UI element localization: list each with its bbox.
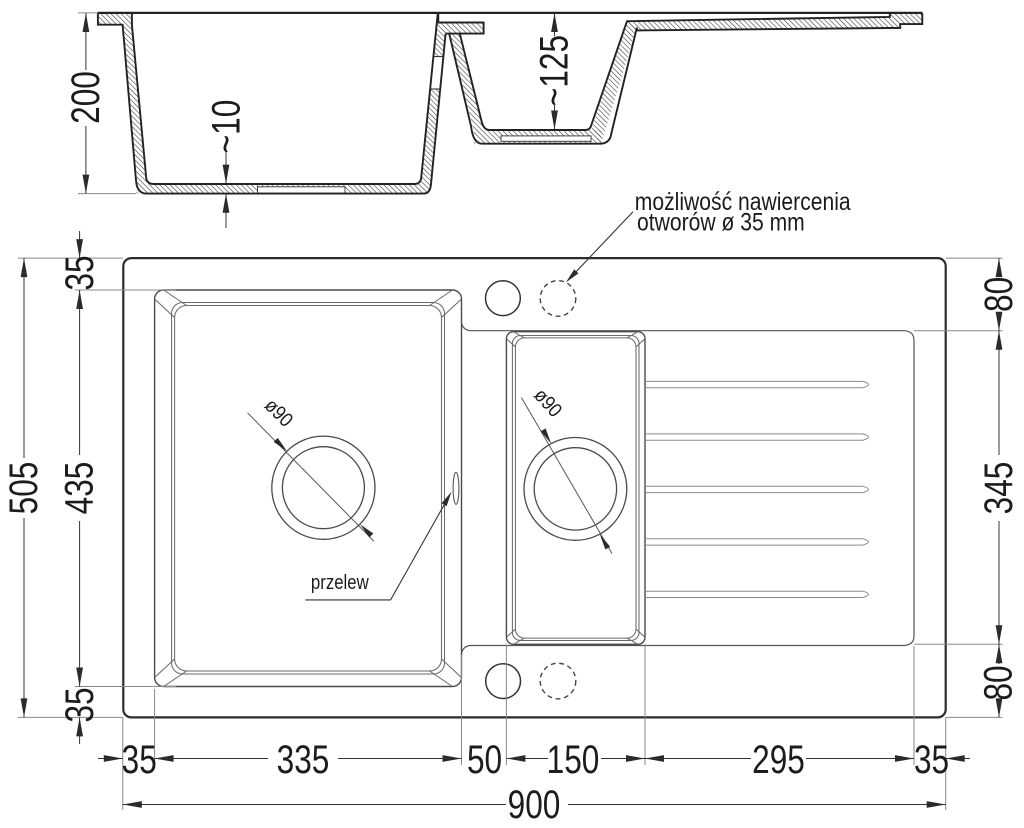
svg-text:900: 900: [508, 782, 561, 826]
svg-text:otworów ø 35 mm: otworów ø 35 mm: [637, 208, 805, 236]
svg-text:50: 50: [467, 737, 502, 781]
svg-text:35: 35: [58, 255, 102, 290]
svg-text:505: 505: [2, 462, 46, 515]
svg-text:150: 150: [547, 737, 600, 781]
svg-text:335: 335: [277, 737, 330, 781]
svg-text:80: 80: [976, 665, 1020, 700]
svg-text:35: 35: [122, 737, 157, 781]
svg-text:435: 435: [57, 462, 101, 515]
svg-text:295: 295: [752, 737, 805, 781]
svg-text:~125: ~125: [532, 35, 576, 106]
svg-text:~10: ~10: [204, 100, 248, 154]
svg-text:200: 200: [64, 71, 108, 124]
svg-text:345: 345: [977, 462, 1021, 515]
svg-text:przelew: przelew: [311, 570, 369, 593]
svg-text:35: 35: [914, 737, 949, 781]
svg-text:35: 35: [58, 687, 102, 722]
svg-text:80: 80: [977, 277, 1021, 312]
